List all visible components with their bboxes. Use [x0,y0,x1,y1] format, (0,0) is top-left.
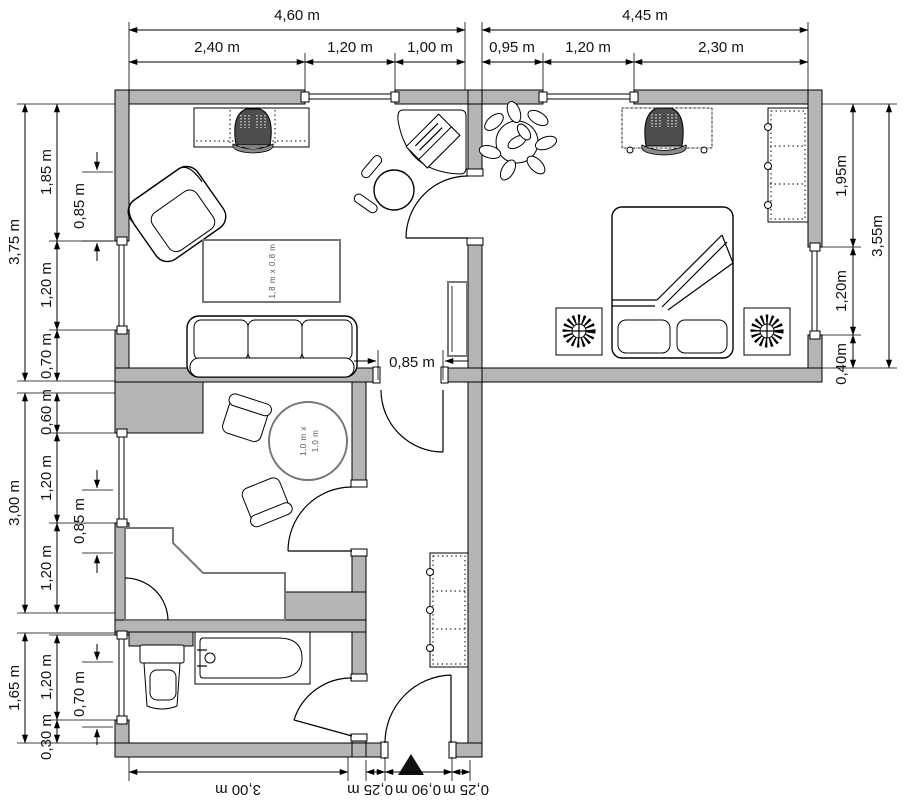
dim-door-width: 0,85 m [389,354,435,371]
dimensions-top: 4,60 m 4,45 m 2,40 m 1,20 m 1,00 m 0,95 … [129,7,808,90]
radiator-shelf [448,282,467,356]
wardrobe-bedroom [765,108,809,222]
dim-right-seg: 1,20m [833,270,850,312]
dim-left-seg: 1,20 m [38,654,55,700]
dim-top-seg: 2,30 m [698,39,744,56]
dim-top-seg: 0,95 m [489,39,535,56]
living-room: 1,8 m x 0,8 m [123,108,467,377]
dim-left-seg: 0,30 m [38,714,55,760]
hallway [427,553,469,667]
dim-bottom-seg: 0,25 m [443,781,489,798]
door-swing-kitchen [288,487,352,551]
bathtub-faucet [205,653,215,663]
floor-plan-svg: 1,8 m x 0,8 m [0,0,906,808]
kitchen-chair-2 [238,475,294,529]
toilet-icon [140,645,184,709]
kitchen-table-size-line2: 1,0 m [311,430,320,453]
dim-top-seg: 1,20 m [565,39,611,56]
double-bed [612,207,733,358]
bedroom [478,100,808,358]
dim-left-overall: 1,65 m [6,665,23,711]
kitchen-table-size-line1: 1,0 m x [299,426,308,456]
dim-top-seg: 2,40 m [194,39,240,56]
dim-left-seg: 0,60 m [38,389,55,435]
dim-top-seg: 1,00 m [407,39,453,56]
plant-icon [478,100,559,183]
dim-left-seg: 0,70 m [38,333,55,379]
door-swing-entrance [385,675,451,743]
kitchen-chair-1 [219,392,273,444]
dim-left-seg: 1,20 m [38,455,55,501]
coffee-table-size-label: 1,8 m x 0,8 m [268,244,277,299]
floor-plan-canvas: 1,8 m x 0,8 m [0,0,906,808]
nightstand-right [744,308,790,355]
svg-text:0,85 m: 0,85 m [71,183,88,229]
door-leaf-bathroom [294,720,352,736]
office-chair [352,154,414,215]
corner-desk [398,110,466,174]
dimensions-right: 1,95m 1,20m 0,40m 3,55m [822,104,897,385]
pillow [618,320,670,353]
dimensions-bottom: 3,00 m 0,25 m 0,90 m 0,25 m [129,757,489,798]
dimensions-left: 3,75 m 3,00 m 1,65 m 1,85 m 1,20 m 0,70 … [6,104,115,760]
dim-top-overall-right: 4,45 m [622,7,668,24]
svg-text:0,85 m: 0,85 m [71,498,88,544]
dim-left-overall: 3,75 m [6,219,23,265]
kitchen-counter [125,528,285,620]
window-jamb [301,92,309,102]
dim-left-seg: 1,20 m [38,545,55,591]
dim-inner-kitchen-window: 0,85 m [71,470,113,573]
dim-top-seg: 1,20 m [327,39,373,56]
dim-inner-living-window: 0,85 m [71,152,113,261]
dim-inner-bath-window: 0,70 m [71,644,113,745]
coffee-table: 1,8 m x 0,8 m [203,240,340,302]
dim-top-overall-left: 4,60 m [274,7,320,24]
dim-right-seg: 1,95m [833,155,850,197]
bathtub-icon [195,632,310,684]
hall-wardrobe [427,553,469,667]
dim-left-seg: 1,85 m [38,149,55,195]
dim-right-overall: 3,55m [869,215,886,257]
door-swing-hallway [381,390,443,452]
dim-bottom-seg: 0,25 m [347,781,393,798]
dining-table-round: 1,0 m x 1,0 m [269,402,347,480]
dim-right-seg: 0,40m [833,343,850,385]
door-swing-bedroom [406,176,468,238]
nightstand-left [556,308,602,355]
pillow [677,320,727,353]
dim-left-seg: 1,20 m [38,262,55,308]
svg-text:0,70 m: 0,70 m [71,671,88,717]
dim-bottom-seg: 0,90 m [395,781,441,798]
dim-bottom-seg: 3,00 m [215,781,261,798]
sofa [187,316,357,377]
dim-left-overall: 3,00 m [6,480,23,526]
